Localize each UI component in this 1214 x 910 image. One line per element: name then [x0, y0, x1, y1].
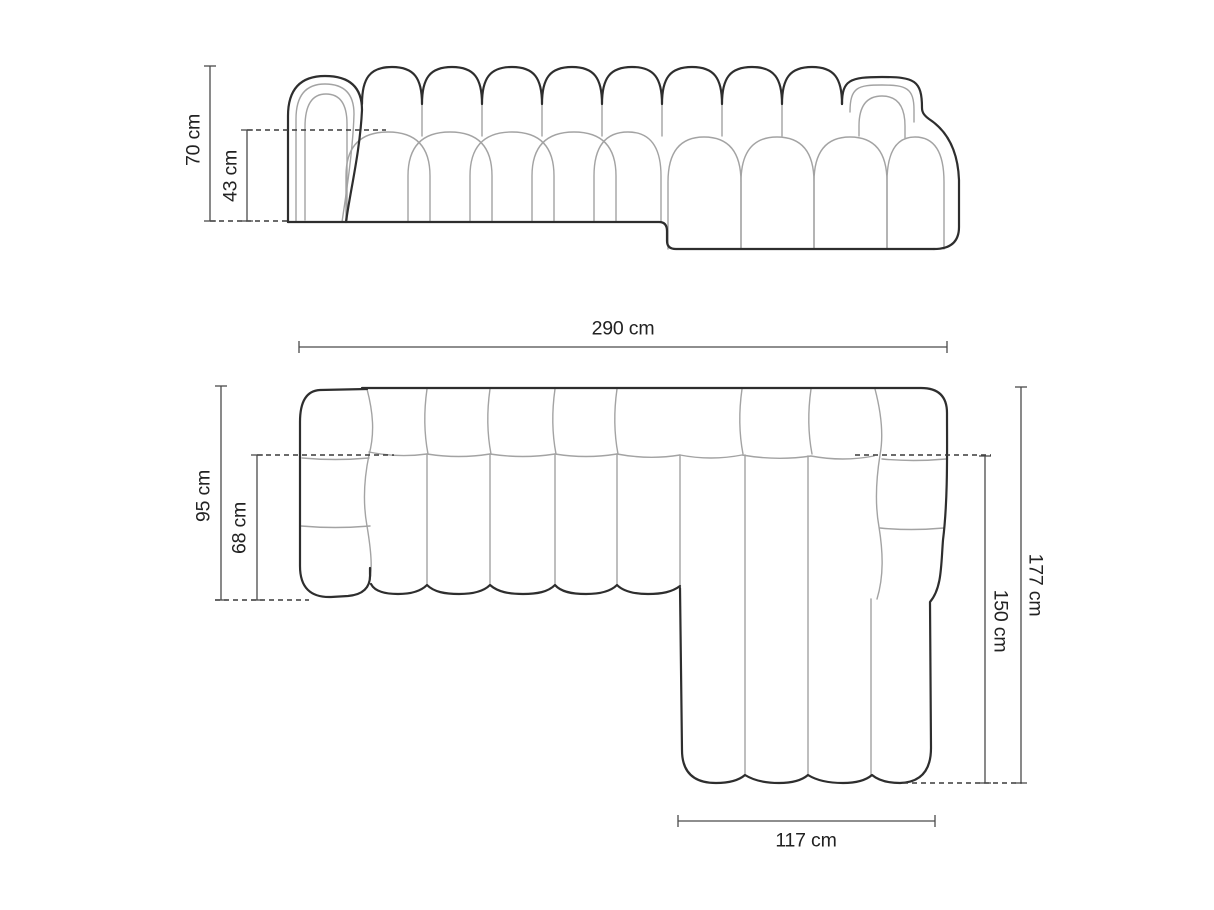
sofa-dimension-diagram: 70 cm 43 cm 290 cm 95 cm 68 cm 177 cm 15…	[0, 0, 1214, 910]
top-view-drawing	[300, 388, 947, 783]
front-view-drawing	[288, 67, 959, 249]
top-view-dimension-lines	[215, 341, 1027, 827]
dim-label-top-chaise-length: 150 cm	[989, 590, 1012, 653]
dim-label-top-chaise-width: 117 cm	[775, 830, 836, 853]
dim-label-front-seat-height: 43 cm	[220, 150, 243, 202]
dim-label-front-height-total: 70 cm	[183, 114, 206, 166]
dim-label-top-seat-depth: 68 cm	[229, 502, 252, 554]
dim-label-top-width-total: 290 cm	[592, 318, 655, 341]
dim-label-top-depth-total: 95 cm	[193, 470, 216, 522]
dim-label-top-length-total: 177 cm	[1024, 554, 1047, 617]
